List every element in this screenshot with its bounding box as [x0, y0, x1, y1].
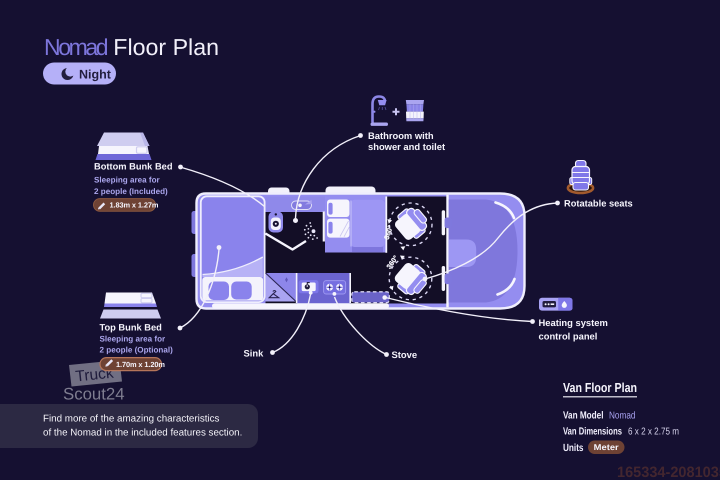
svg-text:1.83m x 1.27m: 1.83m x 1.27m — [110, 200, 159, 209]
svg-text:of the Nomad in the included f: of the Nomad in the included features se… — [43, 428, 242, 439]
svg-text:Night: Night — [79, 68, 112, 82]
svg-text:Sink: Sink — [244, 348, 265, 359]
svg-text:NomadFloor Plan: NomadFloor Plan — [44, 34, 219, 60]
svg-text:Find more of the amazing chara: Find more of the amazing characteristics — [43, 414, 220, 425]
svg-text:2 people (Included): 2 people (Included) — [94, 187, 168, 196]
svg-text:Bathroom with: Bathroom with — [368, 130, 434, 141]
svg-text:Van Floor Plan: Van Floor Plan — [563, 380, 637, 395]
svg-text:control panel: control panel — [539, 331, 598, 342]
svg-text:1.70m x 1.20m: 1.70m x 1.20m — [116, 360, 165, 369]
svg-text:Van Dimensions: Van Dimensions — [563, 427, 622, 438]
svg-text:Sleeping area for: Sleeping area for — [100, 335, 167, 344]
svg-text:shower and toilet: shower and toilet — [368, 141, 445, 152]
svg-text:Top Bunk Bed: Top Bunk Bed — [100, 323, 163, 333]
svg-text:Scout24: Scout24 — [63, 385, 125, 404]
svg-text:Bottom Bunk Bed: Bottom Bunk Bed — [94, 162, 173, 172]
svg-text:165334-20810357: 165334-20810357 — [617, 464, 720, 480]
svg-text:2 people (Optional): 2 people (Optional) — [100, 346, 174, 355]
svg-text:Nomad: Nomad — [609, 411, 636, 422]
svg-text:6 x 2 x 2.75 m: 6 x 2 x 2.75 m — [628, 427, 679, 438]
svg-text:Meter: Meter — [594, 442, 620, 452]
svg-text:Heating system: Heating system — [539, 317, 608, 328]
svg-text:Sleeping area for: Sleeping area for — [94, 176, 161, 185]
svg-text:Rotatable seats: Rotatable seats — [564, 199, 633, 209]
svg-text:Stove: Stove — [392, 349, 418, 360]
svg-text:Units: Units — [563, 443, 584, 454]
svg-text:Van Model: Van Model — [563, 411, 604, 422]
